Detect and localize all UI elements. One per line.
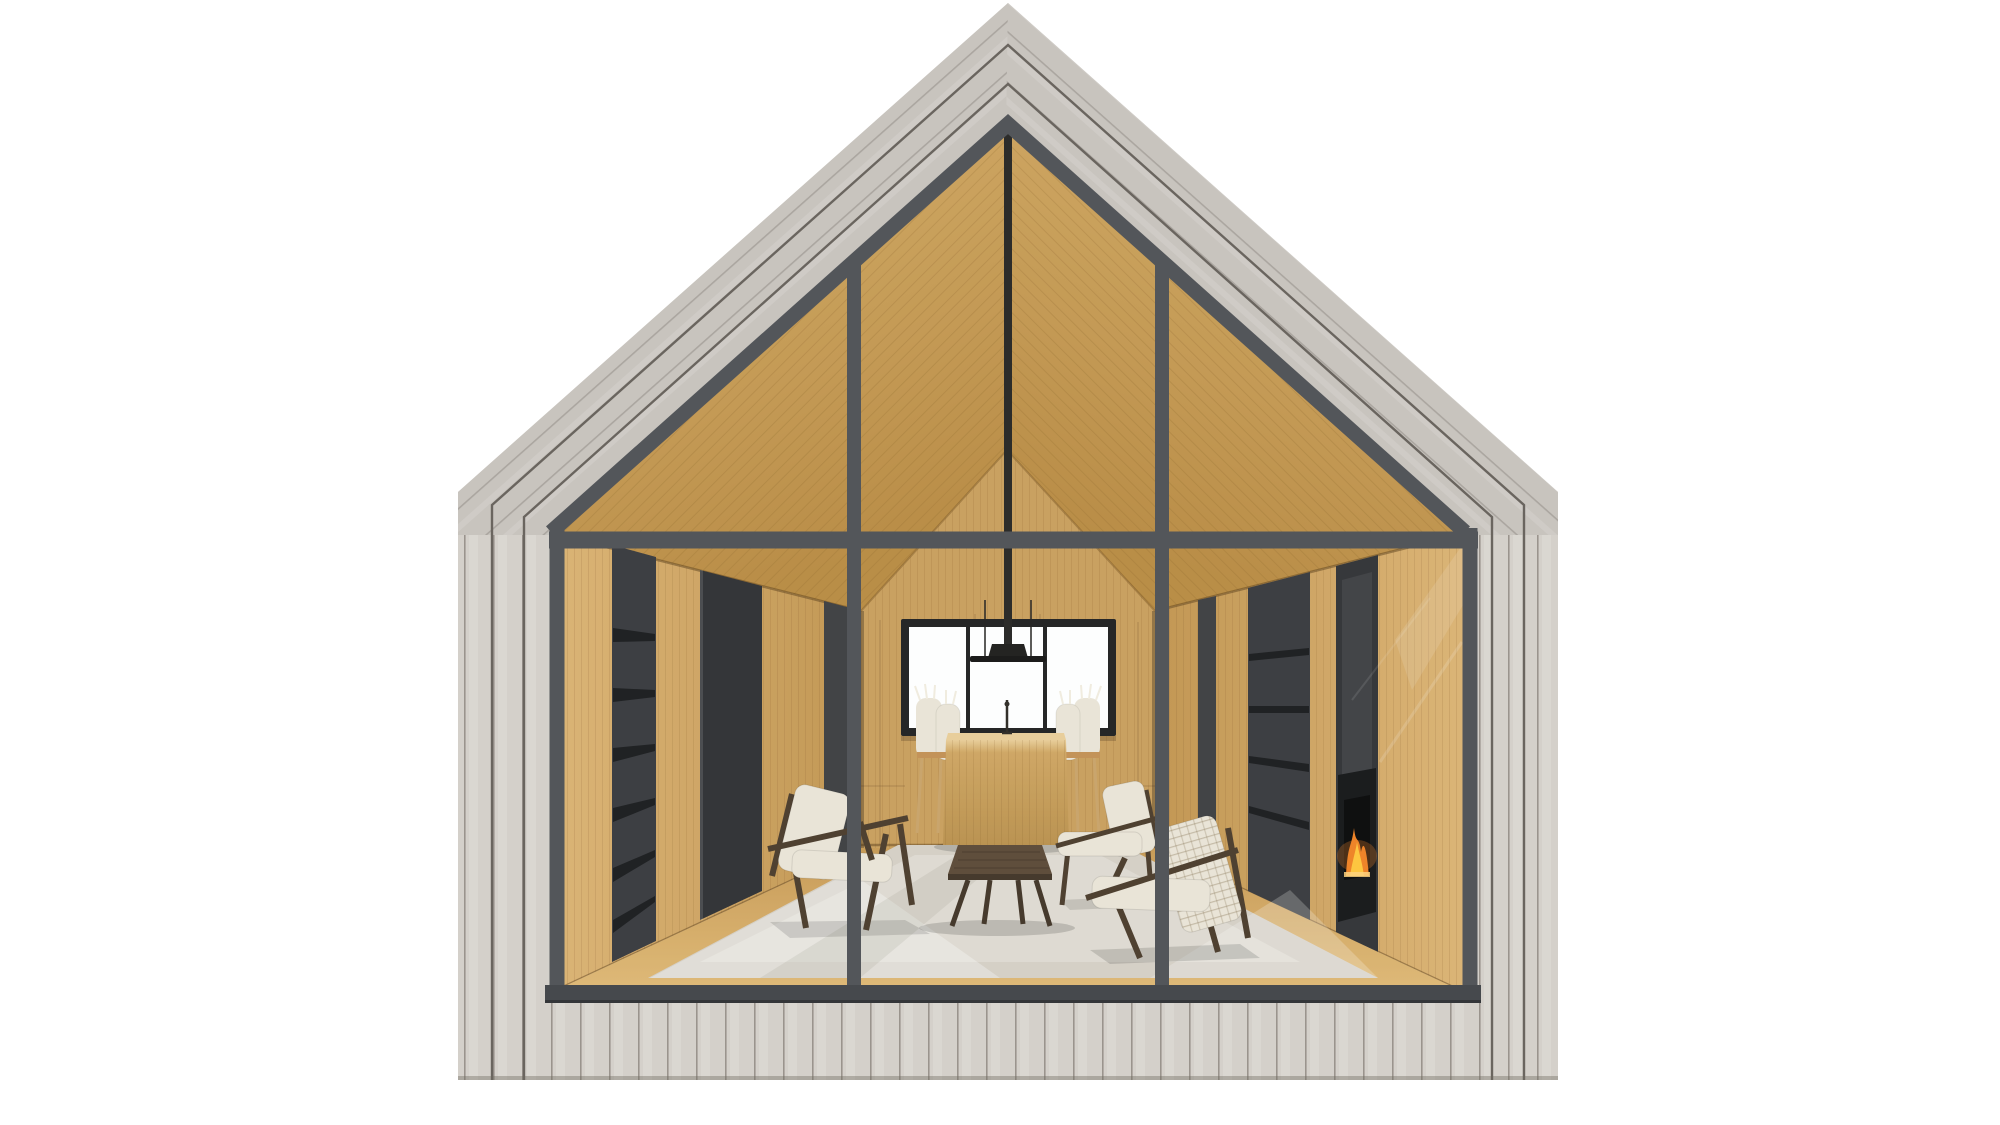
- architectural-render-canvas: [0, 0, 2000, 1125]
- sill-shadow: [545, 1000, 1481, 1003]
- glass-pane-tint: [547, 118, 1472, 996]
- interior-room: [547, 118, 1472, 996]
- cabin-elevation-render: [0, 0, 2000, 1125]
- wall-bottom-shadow: [458, 1076, 1558, 1080]
